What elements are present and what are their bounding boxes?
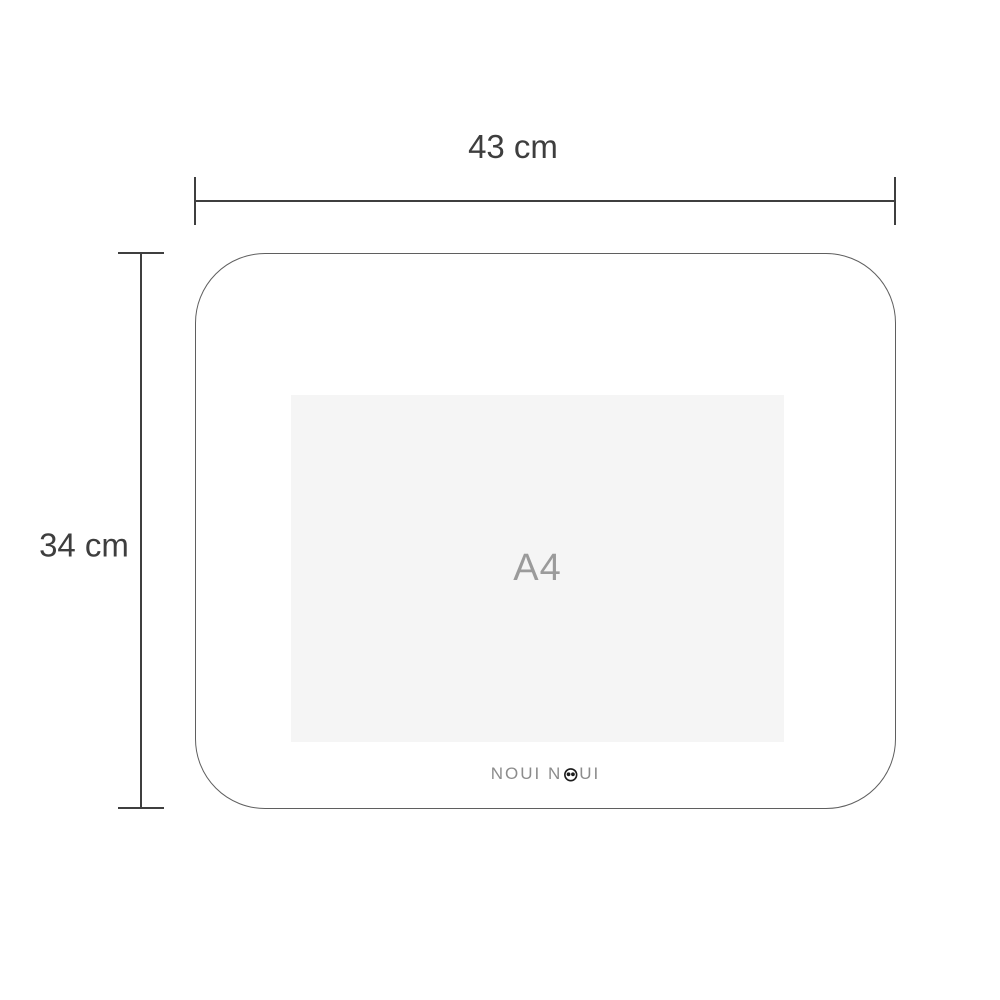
a4-label: A4	[513, 547, 561, 590]
height-dimension-label: 34 cm	[39, 529, 129, 562]
width-dimension-left-tick	[194, 177, 196, 225]
product-dimension-diagram: 43 cm 34 cm A4 NOUI N UI	[0, 0, 1000, 1000]
width-dimension-label: 43 cm	[468, 130, 558, 172]
face-o-icon	[563, 767, 578, 782]
width-dimension-right-tick	[894, 177, 896, 225]
brand-logo: NOUI N UI	[491, 764, 601, 784]
brand-text-after: UI	[579, 764, 600, 784]
a4-insert-area: A4	[291, 395, 784, 742]
brand-text-before: NOUI N	[491, 764, 563, 784]
placemat-outline: A4 NOUI N UI	[195, 253, 896, 809]
height-dimension-top-tick	[118, 252, 164, 254]
height-dimension-line	[140, 253, 142, 809]
width-dimension-line	[195, 200, 896, 202]
height-dimension-bottom-tick	[118, 807, 164, 809]
